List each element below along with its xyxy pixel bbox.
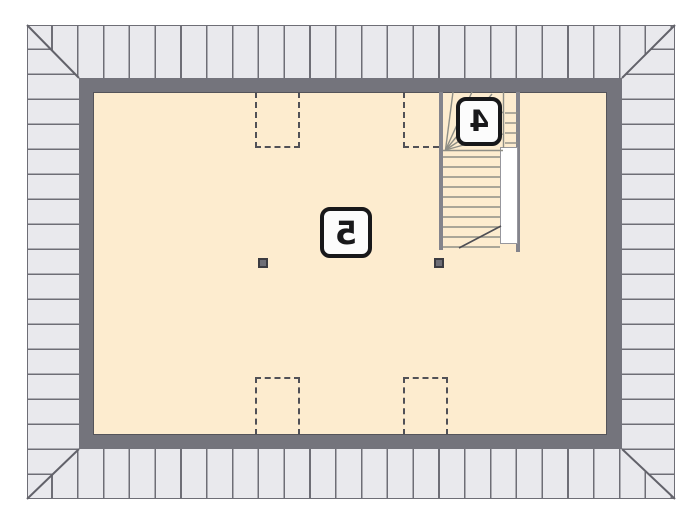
dashed-opening-outline-top-right bbox=[403, 92, 439, 148]
stairwell-wall-left bbox=[439, 92, 444, 250]
room-label-5: 5 bbox=[320, 207, 372, 258]
floor-plan: 5 4 bbox=[0, 0, 700, 528]
column-post-left bbox=[258, 258, 268, 268]
dashed-opening-outline-top-left bbox=[255, 92, 300, 148]
room-number: 5 bbox=[335, 217, 357, 249]
dashed-opening-outline-bottom-right bbox=[403, 377, 448, 435]
attic-room-floor bbox=[93, 92, 607, 435]
stair-number: 4 bbox=[469, 107, 489, 136]
stair-label-4: 4 bbox=[456, 97, 502, 146]
column-post-right bbox=[434, 258, 444, 268]
dashed-opening-outline-bottom-left bbox=[255, 377, 300, 435]
stair-void-strip bbox=[500, 147, 518, 244]
